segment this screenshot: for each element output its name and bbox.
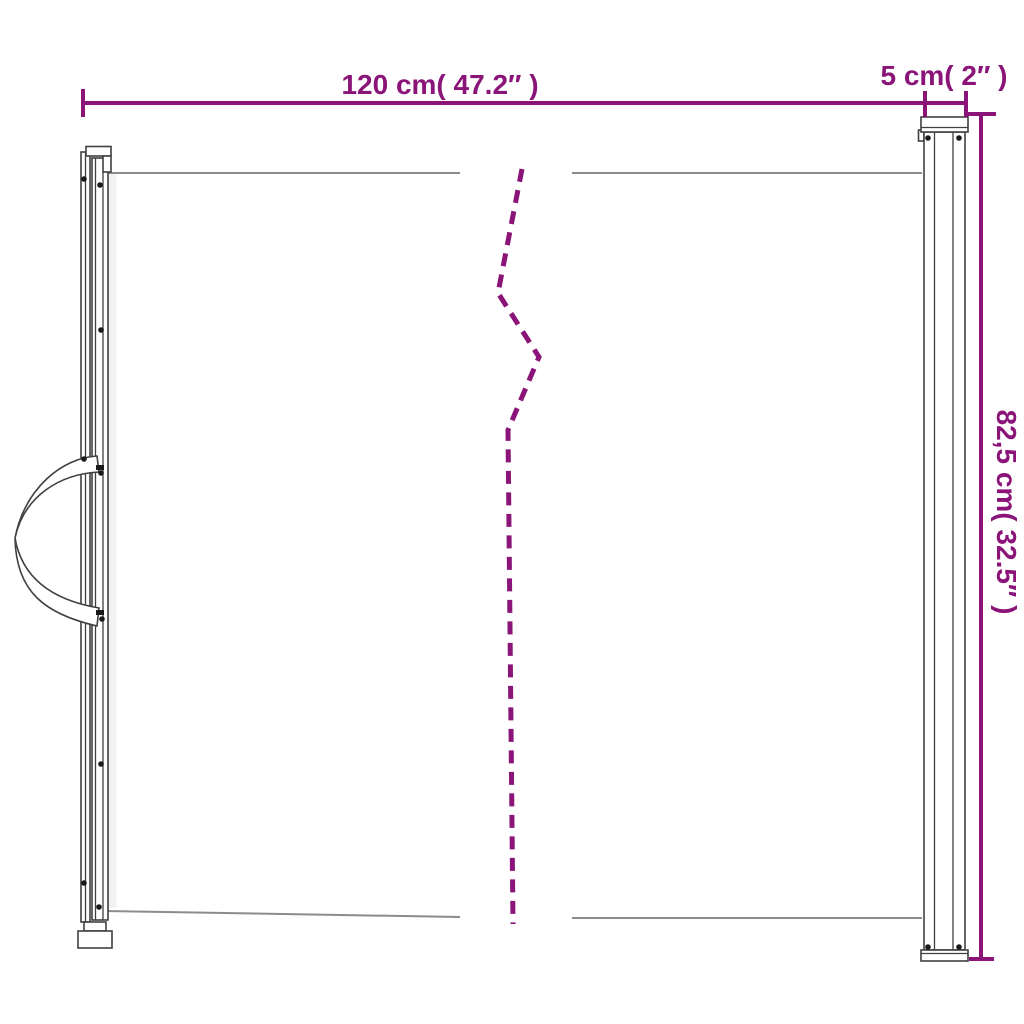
height-dimension: 82,5 cm( 32.5″ ) <box>967 114 1022 959</box>
strap-clip-top <box>96 465 104 470</box>
width-dimension-label: 120 cm( 47.2″ ) <box>341 69 538 100</box>
cassette-post <box>919 117 969 961</box>
product-dimension-diagram: 120 cm( 47.2″ ) 5 cm( 2″ ) 82,5 cm( 32.5… <box>0 0 1024 1024</box>
width-dimension: 120 cm( 47.2″ ) 5 cm( 2″ ) <box>83 60 1008 117</box>
post-shadow-band <box>109 174 117 908</box>
screw-icon <box>81 176 87 182</box>
strap-clip-bottom <box>96 610 104 615</box>
left-post-top-cap <box>86 147 111 157</box>
screw-icon <box>81 456 87 462</box>
cassette-bottom-cap <box>921 950 968 961</box>
screw-icon <box>96 904 102 910</box>
screw-icon <box>97 182 103 188</box>
left-post-foot-step <box>84 922 106 931</box>
screw-icon <box>925 135 931 141</box>
screw-icon <box>98 327 104 333</box>
mesh-bottom-line-left <box>103 911 460 917</box>
left-post-body <box>92 158 108 920</box>
break-symbol-dashed-line <box>498 169 539 924</box>
left-post-top-cap-block <box>103 156 111 172</box>
gate-diagram-svg: 120 cm( 47.2″ ) 5 cm( 2″ ) 82,5 cm( 32.5… <box>0 0 1024 1024</box>
cassette-top-cap <box>921 117 968 132</box>
depth-dimension-label: 5 cm( 2″ ) <box>880 60 1007 91</box>
screw-icon <box>956 944 962 950</box>
screw-icon <box>956 135 962 141</box>
screw-icon <box>81 880 87 886</box>
cassette-body <box>924 132 965 950</box>
screw-icon <box>98 470 104 476</box>
height-dimension-label: 82,5 cm( 32.5″ ) <box>991 410 1022 615</box>
screw-icon <box>925 944 931 950</box>
left-post-foot <box>78 931 112 948</box>
screw-icon <box>98 761 104 767</box>
left-post <box>78 147 117 949</box>
screw-icon <box>99 616 105 622</box>
